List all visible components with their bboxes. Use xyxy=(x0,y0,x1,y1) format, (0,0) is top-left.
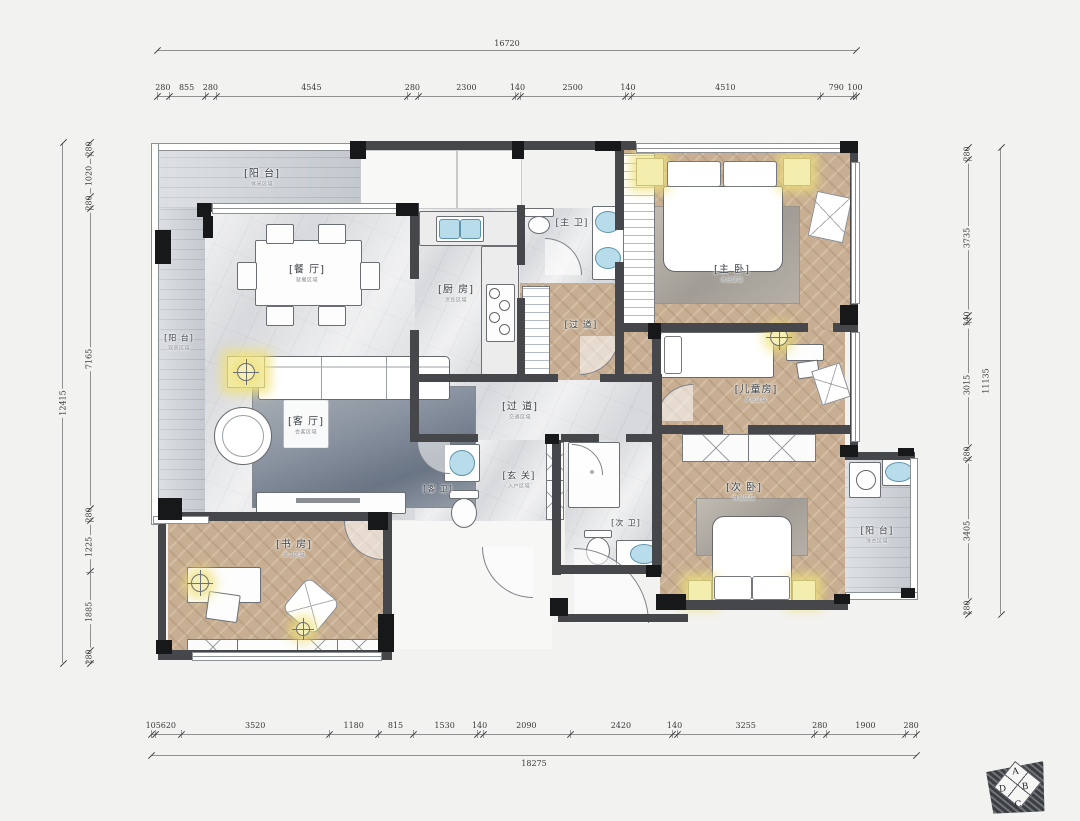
dim-segment-label: 2500 xyxy=(563,83,583,92)
wall-segment xyxy=(561,434,599,442)
structural-column xyxy=(156,640,172,654)
equipment-platform xyxy=(360,150,457,209)
wall-segment xyxy=(358,141,522,150)
dim-segment: 3015 xyxy=(962,322,974,448)
dim-row-top: 2808552804545280230014025001404510790100 xyxy=(157,84,857,97)
dim-segment: 280 xyxy=(407,84,419,96)
lounge-chair xyxy=(214,407,272,465)
room-label-balcony-left: [阳 台] 观景区域 xyxy=(164,333,194,352)
room-label-second-bath: [次 卫] xyxy=(611,518,641,529)
burner-icon xyxy=(489,312,500,323)
dim-segment: 4510 xyxy=(631,84,820,96)
dim-segment: 3520 xyxy=(181,722,329,734)
room-label-balcony-top: [阳 台] 休闲区域 xyxy=(244,165,280,188)
dim-segment-label: 1900 xyxy=(855,721,875,730)
dim-total-right: 11135 xyxy=(1000,148,1001,614)
dim-segment-label: 3735 xyxy=(964,226,973,250)
structural-column xyxy=(834,594,850,604)
window xyxy=(851,162,860,304)
wall-segment xyxy=(652,442,662,573)
floor-plan-canvas: [阳 台] 休闲区域 [阳 台] 观景区域 [餐 厅] 就餐区域 [厨 房] 烹… xyxy=(0,0,1080,821)
tv-console xyxy=(256,492,406,514)
dim-total-top: 16720 xyxy=(157,50,857,51)
compass-letter-d: D xyxy=(998,784,1006,795)
toilet xyxy=(528,216,550,234)
dim-segment-label: 4545 xyxy=(301,83,321,92)
dim-total-bottom: 18275 xyxy=(151,755,917,756)
pillow xyxy=(664,336,682,374)
dim-segment-label: 3520 xyxy=(245,721,265,730)
dim-segment-label: 1530 xyxy=(434,721,454,730)
dim-row-bottom: 1056203520118081515301402090242014032552… xyxy=(151,722,917,735)
dining-chair xyxy=(360,262,380,290)
guest-sink xyxy=(449,450,475,476)
nightstand-lamp xyxy=(636,158,664,186)
structural-column xyxy=(203,216,213,238)
dim-segment: 3735 xyxy=(962,160,974,316)
pillow xyxy=(752,576,790,600)
dim-segment-label: 1180 xyxy=(343,721,363,730)
room-label-balcony-right: [阳 台] 洗衣区域 xyxy=(861,524,894,545)
dim-segment-label: 855 xyxy=(179,83,194,92)
pillow xyxy=(723,161,777,187)
structural-column xyxy=(368,512,388,530)
wall-segment xyxy=(410,330,419,442)
structural-column xyxy=(656,594,686,610)
structural-column xyxy=(155,230,171,264)
dining-chair xyxy=(266,224,294,244)
dim-total-label: 12415 xyxy=(59,388,68,417)
burner-icon xyxy=(499,300,510,311)
dim-segment: 1020 xyxy=(84,155,96,198)
room-label-dining: [餐 厅] 就餐区域 xyxy=(289,261,325,284)
dim-segment: 620 xyxy=(155,722,181,734)
window xyxy=(212,203,408,214)
burner-icon xyxy=(489,288,500,299)
structural-column xyxy=(646,565,661,577)
dim-segment: 2500 xyxy=(520,84,625,96)
room-label-master-hallway: [过 道] xyxy=(565,318,598,331)
dim-segment: 2300 xyxy=(418,84,514,96)
dim-segment-label: 2090 xyxy=(516,721,536,730)
dining-chair xyxy=(266,306,294,326)
dim-segment: 280 xyxy=(157,84,169,96)
dim-col-right: 280373514030152803405280 xyxy=(962,148,974,614)
dim-segment: 1180 xyxy=(329,722,378,734)
room-label-study: [书 房] 学习区域 xyxy=(276,536,312,559)
structural-column xyxy=(550,598,568,616)
dim-segment: 280 xyxy=(814,722,826,734)
dim-segment-label: 815 xyxy=(388,721,403,730)
compass-letter-b: B xyxy=(1021,782,1029,793)
window xyxy=(851,332,860,442)
wall-segment xyxy=(520,374,558,382)
structural-column xyxy=(512,141,524,159)
dim-segment: 3405 xyxy=(962,460,974,603)
balcony-railing xyxy=(151,143,159,525)
structural-column xyxy=(545,434,559,444)
dim-segment-label: 1020 xyxy=(86,164,95,188)
balcony-sink xyxy=(885,462,913,482)
wall-segment xyxy=(410,205,419,279)
structural-column xyxy=(840,305,858,325)
room-label-master-bath: [主 卫] xyxy=(556,216,589,229)
room-label-master-bedroom: [主 卧] 休息区域 xyxy=(714,261,750,284)
dim-total-left: 12415 xyxy=(62,143,63,663)
master-bed xyxy=(663,186,783,272)
wall-segment xyxy=(552,440,561,575)
wall-segment xyxy=(558,614,688,622)
dim-segment-label: 790 xyxy=(829,83,844,92)
ceiling-light-icon xyxy=(191,574,209,592)
dining-chair xyxy=(237,262,257,290)
structural-column xyxy=(197,203,211,217)
structural-column xyxy=(840,445,858,457)
dim-segment-label: 7165 xyxy=(86,347,95,371)
wall-segment xyxy=(412,374,522,382)
structural-column xyxy=(396,203,418,216)
dim-total-label: 18275 xyxy=(521,759,546,768)
dim-segment-label: 2300 xyxy=(456,83,476,92)
structural-column xyxy=(901,588,915,598)
wall-segment xyxy=(517,205,525,265)
room-label-kids-room: [儿童房] 休息区域 xyxy=(735,381,778,404)
hallway-wardrobe xyxy=(522,286,550,378)
dim-segment-label: 3405 xyxy=(964,519,973,543)
dim-segment-label: 1885 xyxy=(86,600,95,624)
dim-segment-label: 4510 xyxy=(715,83,735,92)
dim-col-left: 2801020280716528012251885280 xyxy=(84,143,96,663)
structural-column xyxy=(595,141,621,151)
balcony-railing xyxy=(910,458,918,598)
dining-chair xyxy=(318,224,346,244)
dim-segment-label: 1225 xyxy=(86,535,95,559)
kitchen-sink-left xyxy=(439,219,460,239)
dim-segment: 7165 xyxy=(84,209,96,509)
balcony-railing xyxy=(153,143,365,151)
dim-segment: 855 xyxy=(169,84,205,96)
nightstand-lamp xyxy=(783,158,811,186)
toilet xyxy=(451,498,477,528)
room-label-living: [客 厅] 会客区域 xyxy=(284,401,328,448)
kids-desk xyxy=(786,344,824,361)
north-indicator: A B C D xyxy=(986,761,1049,817)
room-label-guest-bath: [客 卫] xyxy=(423,484,453,495)
structural-column xyxy=(840,141,858,153)
wall-segment xyxy=(748,425,858,434)
dim-segment-label: 2420 xyxy=(611,721,631,730)
closet xyxy=(748,434,816,462)
dim-segment: 1900 xyxy=(826,722,906,734)
washer-drum-icon xyxy=(856,470,876,490)
dim-segment: 4545 xyxy=(216,84,406,96)
tv-soundbar xyxy=(296,498,360,503)
dim-segment-label: 3015 xyxy=(964,373,973,397)
dim-segment-label: 620 xyxy=(161,721,176,730)
window xyxy=(636,143,846,153)
dim-segment: 2090 xyxy=(483,722,571,734)
structural-column xyxy=(648,323,661,339)
dim-total-label: 11135 xyxy=(981,366,990,395)
ceiling-light-icon xyxy=(237,363,255,381)
dining-chair xyxy=(318,306,346,326)
dim-segment: 815 xyxy=(378,722,412,734)
wall-segment xyxy=(158,512,166,660)
dim-segment-label: 280 xyxy=(904,721,919,730)
dim-segment-label: 100 xyxy=(847,83,862,92)
dim-segment: 3255 xyxy=(677,722,813,734)
wall-segment xyxy=(412,434,478,442)
dim-total-label: 16720 xyxy=(494,39,519,48)
structural-column xyxy=(158,498,182,520)
dim-segment: 1530 xyxy=(413,722,477,734)
wall-segment xyxy=(615,150,624,230)
kitchen-sink-right xyxy=(460,219,481,239)
dim-segment-label: 3255 xyxy=(736,721,756,730)
window xyxy=(192,652,382,661)
dim-segment: 1885 xyxy=(84,572,96,651)
room-label-second-bedroom: [次 卧] 休息区域 xyxy=(726,479,762,502)
dim-segment: 2420 xyxy=(570,722,671,734)
ceiling-light-icon xyxy=(296,622,310,636)
wall-segment xyxy=(626,434,662,442)
structural-column xyxy=(898,448,914,456)
room-label-entry: [玄 关] 入户区域 xyxy=(503,469,536,490)
room-label-kitchen: [厨 房] 烹饪区域 xyxy=(438,281,474,304)
burner-icon xyxy=(499,324,510,335)
structural-column xyxy=(350,141,366,159)
wall-segment xyxy=(686,600,848,610)
dim-segment: 1225 xyxy=(84,521,96,572)
wall-segment xyxy=(655,425,723,434)
structural-column xyxy=(378,614,394,652)
wall-segment xyxy=(517,298,525,382)
compass-letter-a: A xyxy=(1012,767,1020,778)
room-label-corridor: [过 道] 交通区域 xyxy=(502,398,538,421)
closet xyxy=(682,434,750,462)
wall-segment xyxy=(615,262,624,382)
compass-letter-c: C xyxy=(1014,800,1022,811)
desk-chair xyxy=(205,591,241,623)
pillow xyxy=(714,576,752,600)
dim-segment: 280 xyxy=(205,84,217,96)
pillow xyxy=(667,161,721,187)
